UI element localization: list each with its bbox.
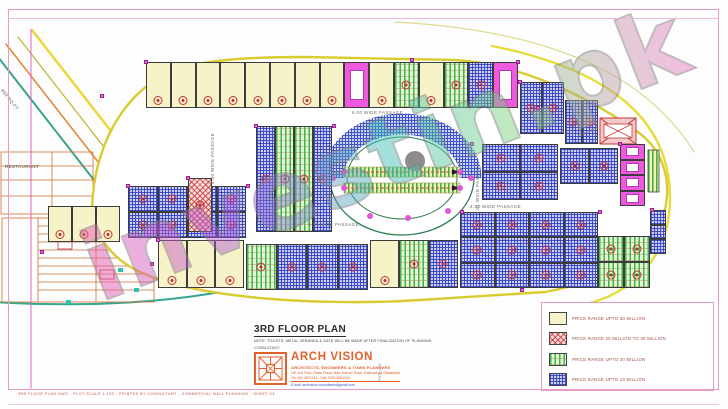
legend-label: PRICE RANGE UPTO 30 MILLION (572, 316, 645, 321)
shop-unit (598, 236, 624, 262)
firm-name: ARCH VISION (291, 352, 400, 364)
page-title: 3RD FLOOR PLAN (254, 324, 346, 337)
shop-unit (520, 172, 558, 200)
shop-unit (564, 212, 599, 237)
shop-unit (320, 62, 345, 108)
cad-grip (650, 208, 654, 212)
cad-grip (144, 60, 148, 64)
shop-unit (650, 210, 666, 225)
shop-unit (564, 263, 599, 288)
cad-grip (520, 288, 524, 292)
shop-unit (650, 225, 666, 240)
cad-grip (100, 94, 104, 98)
legend-row: PRICE RANGE 20 MILLION TO 30 MILLION (549, 329, 713, 350)
shop-block-topright-3 (560, 148, 618, 184)
restaurant-label: RESTAURANT (5, 164, 39, 169)
legend-label: PRICE RANGE 20 MILLION TO 30 MILLION (572, 336, 666, 341)
shop-unit (171, 62, 196, 108)
shop-unit (624, 236, 650, 262)
legend-swatch-green-stripes (549, 353, 567, 366)
cad-grip (598, 210, 602, 214)
shop-unit (495, 237, 530, 262)
shop-block-bottom-arc-3 (370, 240, 458, 288)
shop-unit (589, 148, 618, 184)
shop-unit (460, 237, 495, 262)
shop-block-bottom-right (460, 212, 598, 288)
shop-unit (295, 62, 320, 108)
shop-unit (338, 244, 369, 290)
cad-grip (410, 58, 414, 62)
toilet-stall (620, 160, 645, 176)
cad-grip (460, 210, 464, 214)
shop-unit (429, 240, 458, 288)
price-legend: PRICE RANGE UPTO 30 MILLION PRICE RANGE … (541, 302, 714, 391)
plot-stamp: 3RD FLOOR PLAN.DWG - PLOT SCALE 1:100 - … (18, 392, 714, 396)
shop-unit (650, 239, 666, 254)
consultant-label: CONSULTANT: (254, 346, 479, 350)
cad-grip (254, 124, 258, 128)
cad-grip (126, 184, 130, 188)
legend-row: PRICE RANGE UPTO 20 MILLION (549, 349, 713, 370)
toilet-stall (620, 191, 645, 207)
cad-grip (618, 142, 622, 146)
toilet-stall (620, 175, 645, 191)
shop-unit (307, 244, 338, 290)
shop-unit (529, 237, 564, 262)
legend-row: PRICE RANGE UPTO 30 MILLION (549, 308, 713, 329)
firm-address-1: Off: 2nd Floor, Rania Plaza, Main Murree… (291, 371, 400, 375)
arch-vision-logo-icon (254, 352, 287, 385)
toilet-stalls (620, 144, 645, 206)
firm-address-2: Tel: 051-4571234 - Cell: 0300-5551234 (291, 376, 400, 380)
shop-unit (460, 263, 495, 288)
legend-row: PRICE RANGE UPTO 10 MILLION (549, 370, 713, 391)
legend-swatch-blue-grid (549, 373, 567, 386)
shop-unit (495, 263, 530, 288)
shop-unit (495, 212, 530, 237)
shop-unit (529, 263, 564, 288)
sheet-border-inner-top (8, 18, 719, 19)
shop-unit (146, 62, 171, 108)
shop-unit (399, 240, 428, 288)
shop-unit (245, 62, 270, 108)
shop-unit (529, 212, 564, 237)
shop-block-far-right-green (598, 236, 650, 288)
sheet-border-inner-bottom (8, 404, 719, 405)
floor-plan-sheet: 6.00 WIDE PASSAGE 4.00 WIDE PASSAGE 5.25… (0, 0, 728, 409)
shop-unit (370, 240, 399, 288)
shop-unit (598, 262, 624, 288)
firm-tagline: ARCHITECTS, ENGINEERS & TOWN PLANNERS (291, 365, 400, 370)
title-block: 3RD FLOOR PLAN NOTE: TOILETS, METAL VERA… (254, 319, 479, 387)
shop-unit (564, 237, 599, 262)
shop-unit (220, 62, 245, 108)
legend-swatch-red-crosshatch (549, 332, 567, 345)
shop-unit (270, 62, 295, 108)
passage-label-bottom: 4.50 WIDE PASSAGE (470, 204, 521, 209)
shop-stack-right-edge (650, 210, 666, 254)
shop-unit (624, 262, 650, 288)
plan-note: NOTE: TOILETS, METAL VERANDA & GATE WILL… (254, 339, 479, 343)
legend-label: PRICE RANGE UPTO 10 MILLION (572, 377, 645, 382)
cad-grip (40, 250, 44, 254)
cad-marker-cyan (66, 300, 71, 304)
shop-unit (560, 148, 589, 184)
firm-email: E-mail: archvision.consultants@gmail.com (291, 381, 400, 387)
shop-unit (482, 172, 520, 200)
firm-registration: (PVT.) LTD. (378, 362, 382, 382)
consultant-firm: ARCH VISION ARCHITECTS, ENGINEERS & TOWN… (254, 352, 479, 388)
shop-unit (460, 212, 495, 237)
escalator-strip (648, 150, 659, 192)
legend-swatch-yellow (549, 312, 567, 325)
toilet-stall (620, 144, 645, 160)
legend-label: PRICE RANGE UPTO 20 MILLION (572, 357, 645, 362)
firm-text: ARCH VISION ARCHITECTS, ENGINEERS & TOWN… (291, 352, 400, 388)
shop-unit (196, 62, 221, 108)
